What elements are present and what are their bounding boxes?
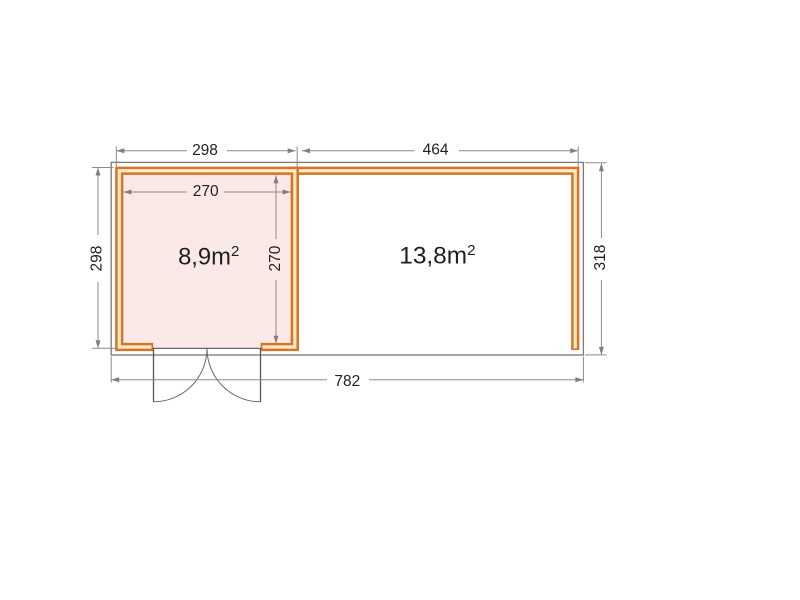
svg-text:8,9m2: 8,9m2 [178,243,239,271]
svg-text:782: 782 [334,373,360,390]
svg-text:270: 270 [193,183,219,200]
svg-text:298: 298 [192,142,218,159]
svg-text:270: 270 [267,245,284,271]
svg-text:298: 298 [89,246,106,272]
svg-text:464: 464 [423,141,449,158]
svg-text:13,8m2: 13,8m2 [399,242,475,270]
svg-text:318: 318 [592,245,609,271]
